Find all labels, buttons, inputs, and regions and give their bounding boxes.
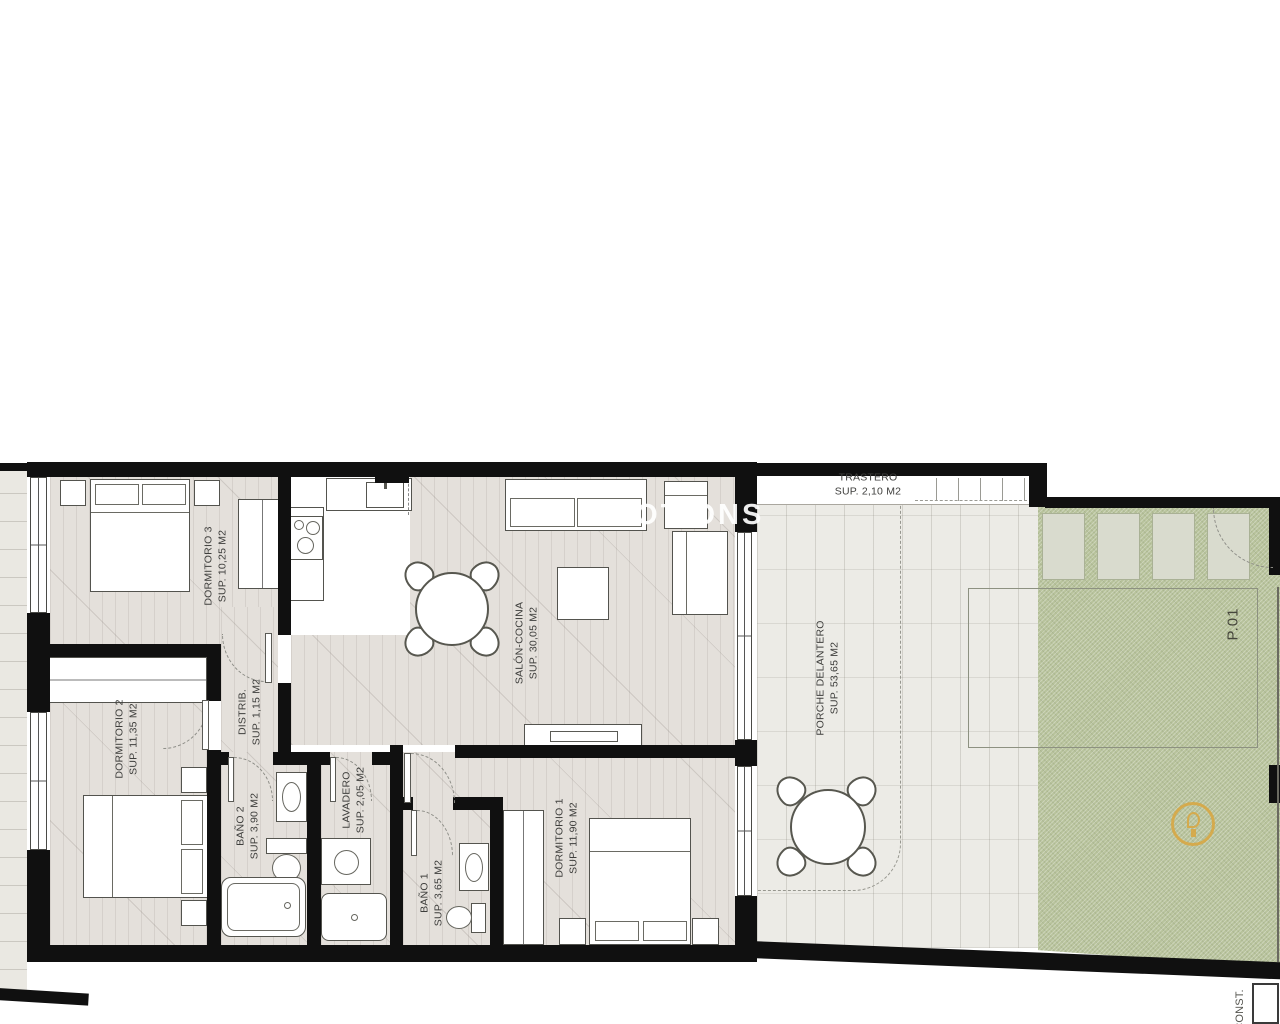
window <box>30 712 47 850</box>
room-area: SUP. 11,90 M2 <box>567 798 581 877</box>
patio-outline <box>968 588 1258 748</box>
wall-segment <box>307 752 321 947</box>
kitchen-hob <box>290 516 323 560</box>
wall-segment <box>207 644 221 701</box>
room-label-trastero: TRASTERO SUP. 2,10 M2 <box>835 471 901 498</box>
basin-bowl <box>465 853 483 882</box>
room-area: SUP. 11,35 M2 <box>127 699 141 778</box>
room-area: SUP. 3,90 M2 <box>248 793 262 859</box>
wall-segment-diagonal <box>0 988 89 1006</box>
corner-label: CONST. <box>1233 989 1247 1024</box>
nightstand <box>692 918 719 945</box>
room-label-distribuidor: DISTRIB. SUP. 1,15 M2 <box>236 679 263 745</box>
door-leaf <box>404 753 411 803</box>
washbasin <box>459 843 489 891</box>
pillow <box>181 849 203 894</box>
room-name: DORMITORIO 2 <box>113 699 127 778</box>
sofa-cushion <box>510 498 575 527</box>
washing-machine <box>321 838 371 885</box>
wall-segment <box>207 750 221 947</box>
trastero-shelf-marks <box>915 478 1027 501</box>
wall-segment <box>375 475 409 483</box>
blanket-line <box>91 512 189 513</box>
kitchen-dashed-divider <box>408 479 409 515</box>
room-name: DORMITORIO 1 <box>553 798 567 877</box>
wall-segment <box>390 745 403 947</box>
room-label-bano2: BAÑO 2 SUP. 3,90 M2 <box>234 793 261 859</box>
wall-segment <box>27 850 50 947</box>
washer-door-icon <box>334 850 359 875</box>
nightstand <box>559 918 586 945</box>
washbasin <box>276 772 307 822</box>
wall-segment <box>278 477 291 609</box>
boundary-line <box>1277 587 1279 962</box>
badge-glyph <box>1187 812 1200 828</box>
burner-icon <box>294 520 304 530</box>
room-name: TRASTERO <box>835 471 901 485</box>
pillow <box>643 921 687 941</box>
pillow <box>181 800 203 845</box>
nightstand <box>181 767 207 793</box>
wall-segment <box>43 644 213 657</box>
nightstand <box>194 480 220 506</box>
wall-segment <box>0 463 30 471</box>
wall-segment <box>735 740 757 766</box>
sliding-glass-door <box>737 532 752 740</box>
room-label-salon: SALÓN-COCINA SUP. 30,05 M2 <box>513 602 540 684</box>
room-name: LAVADERO <box>340 767 354 833</box>
brand-badge-icon <box>1171 802 1215 846</box>
wall-segment <box>453 797 490 810</box>
nightstand <box>181 900 207 926</box>
toilet-cistern <box>266 838 307 854</box>
window <box>737 766 752 896</box>
toilet-bowl <box>446 906 472 929</box>
door-leaf <box>202 700 209 750</box>
pillow <box>142 484 186 505</box>
burner-icon <box>306 521 320 535</box>
wall-segment <box>1045 497 1280 508</box>
pillow <box>95 484 139 505</box>
room-name: DORMITORIO 3 <box>202 526 216 605</box>
door-leaf <box>330 757 336 802</box>
drain-icon <box>351 914 358 921</box>
planter <box>1042 513 1085 580</box>
coffee-table <box>557 567 609 620</box>
nightstand <box>60 480 86 506</box>
door-leaf <box>265 633 272 683</box>
room-area: SUP. 2,05 M2 <box>354 767 368 833</box>
room-label-lavadero: LAVADERO SUP. 2,05 M2 <box>340 767 367 833</box>
room-label-dormitorio2: DORMITORIO 2 SUP. 11,35 M2 <box>113 699 140 778</box>
room-label-dormitorio3: DORMITORIO 3 SUP. 10,25 M2 <box>202 526 229 605</box>
wall-segment <box>27 613 50 712</box>
wall-segment <box>273 752 330 765</box>
armchair <box>672 531 728 615</box>
toilet-cistern <box>471 903 486 933</box>
wall-segment <box>455 745 735 758</box>
blanket-line <box>112 796 113 897</box>
wall-segment <box>27 945 757 962</box>
badge-glyph <box>1191 829 1196 837</box>
burner-icon <box>297 537 314 554</box>
planter <box>1152 513 1195 580</box>
room-name: SALÓN-COCINA <box>513 602 527 684</box>
room-area: SUP. 30,05 M2 <box>527 602 541 684</box>
pillow <box>595 921 639 941</box>
room-area: SUP. 1,15 M2 <box>250 679 264 745</box>
planter <box>1097 513 1140 580</box>
title-block-box <box>1252 983 1279 1024</box>
bed-dormitorio1 <box>589 818 691 945</box>
door-leaf <box>411 810 417 856</box>
dining-table <box>415 572 489 646</box>
kitchen-sink <box>366 482 404 508</box>
drain-icon <box>284 902 291 909</box>
wall-segment <box>490 797 503 945</box>
wall-segment <box>278 683 291 752</box>
blanket-line <box>590 851 690 852</box>
room-name: PORCHE DELANTERO <box>814 620 828 735</box>
wall-segment <box>207 752 229 765</box>
basin-bowl <box>282 782 301 812</box>
room-name: BAÑO 2 <box>234 793 248 859</box>
room-area: SUP. 53,65 M2 <box>828 620 842 735</box>
bathtub <box>221 877 306 937</box>
room-name: BAÑO 1 <box>418 860 432 926</box>
wardrobe-dormitorio2 <box>48 657 207 703</box>
floor-plan: DORMITORIO 3 SUP. 10,25 M2 SALÓN-COCINA … <box>0 0 1280 1024</box>
wall-segment <box>735 896 757 962</box>
tv-unit-detail <box>550 731 618 742</box>
room-label-porche: PORCHE DELANTERO SUP. 53,65 M2 <box>814 620 841 735</box>
room-name: DISTRIB. <box>236 679 250 745</box>
room-area: SUP. 3,65 M2 <box>432 860 446 926</box>
bed-dormitorio3 <box>90 479 190 592</box>
plot-label: P.01 <box>1223 608 1243 641</box>
wardrobe-dormitorio1 <box>503 810 544 945</box>
window <box>30 477 47 613</box>
room-area: SUP. 2,10 M2 <box>835 485 901 499</box>
room-label-dormitorio1: DORMITORIO 1 SUP. 11,90 M2 <box>553 798 580 877</box>
neighbor-terrace-floor <box>0 470 27 998</box>
room-area: SUP. 10,25 M2 <box>216 526 230 605</box>
room-label-bano1: BAÑO 1 SUP. 3,65 M2 <box>418 860 445 926</box>
wall-segment <box>278 609 291 635</box>
porch-table <box>790 789 866 865</box>
laundry-sink <box>321 893 387 941</box>
watermark: MOTIONS <box>608 499 764 532</box>
bed-dormitorio2 <box>83 795 208 898</box>
door-leaf <box>228 757 234 802</box>
